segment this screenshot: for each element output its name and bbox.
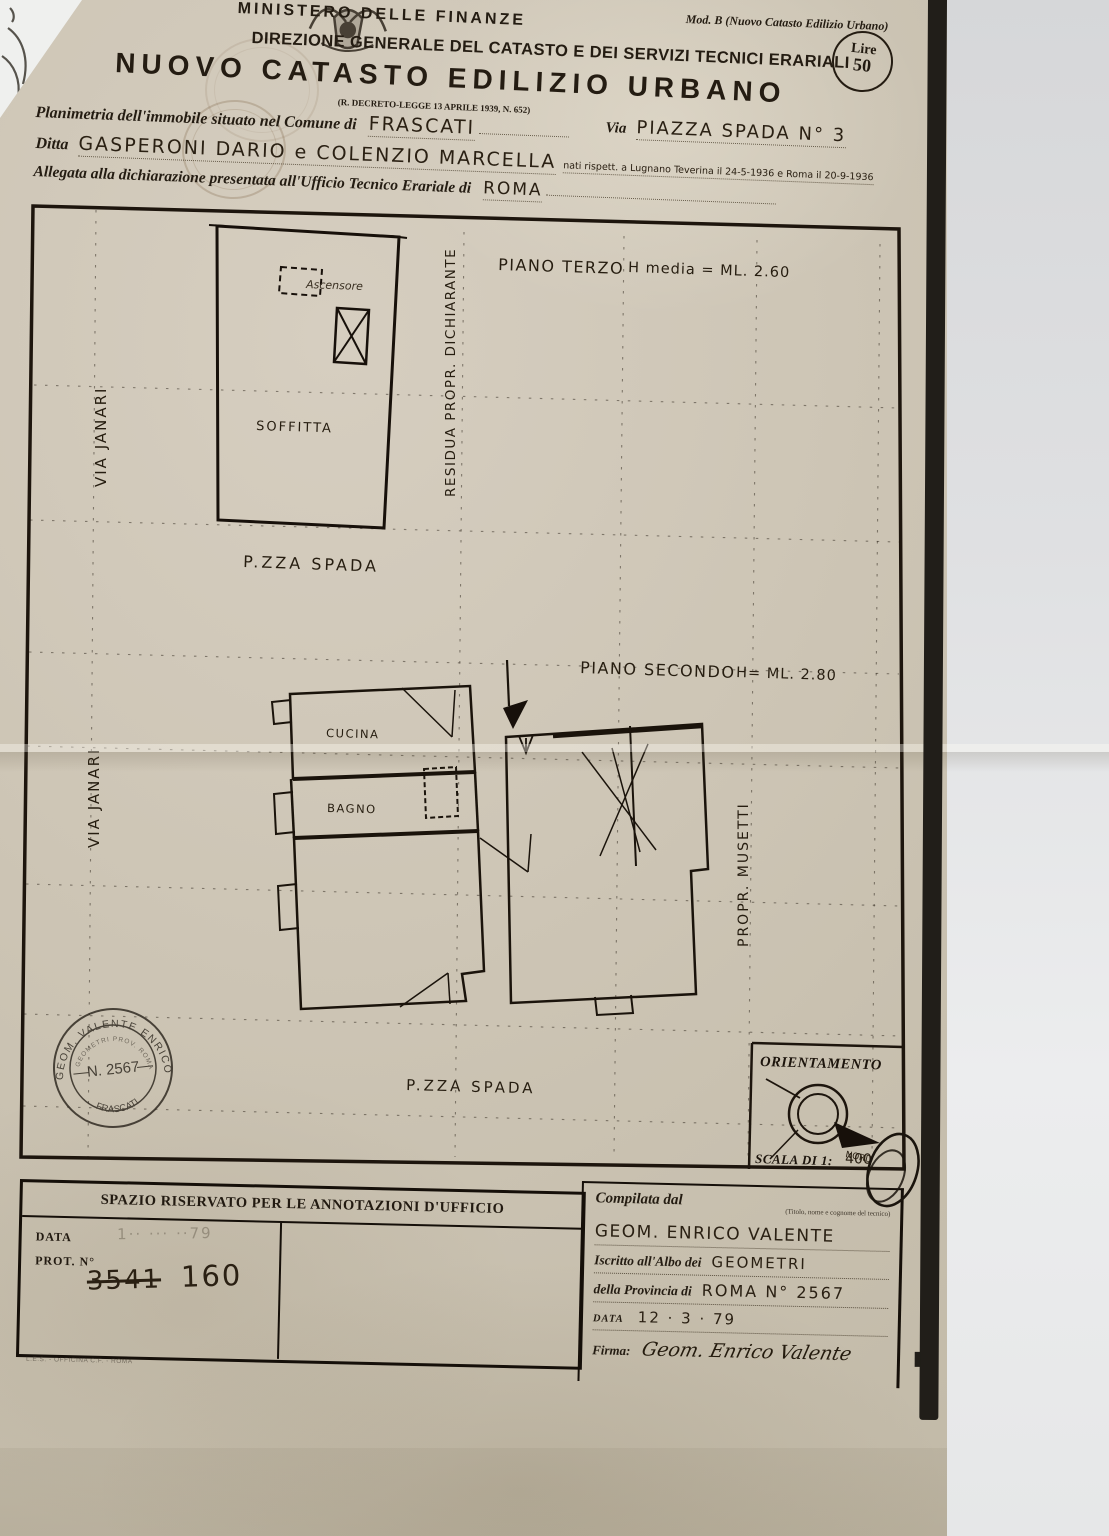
firma-label: Firma: [592, 1342, 631, 1358]
signature: Geom. Enrico Valente [640, 1338, 854, 1365]
protocol-number-crossed: 3541 [86, 1264, 161, 1296]
protocol-numbers: 3541 160 [86, 1258, 242, 1297]
scanned-cadastral-document: MINISTERO DELLE FINANZE Mod. B (Nuovo Ca… [0, 0, 1109, 1536]
compiler-box: Compilata dal (Titolo, nome e cognome de… [577, 1181, 903, 1388]
provincia-label: della Provincia di [593, 1281, 692, 1298]
albo-value: GEOMETRI [711, 1253, 807, 1273]
provincia-value: ROMA N° 2567 [702, 1281, 846, 1303]
compiler-date-label: DATA [593, 1313, 624, 1325]
allegata-value: ROMA [483, 178, 543, 202]
via-label: Via [605, 120, 626, 137]
office-annotations-box: SPAZIO RISERVATO PER LE ANNOTAZIONI D'UF… [16, 1179, 586, 1370]
albo-label: Iscritto all'Albo dei [594, 1252, 702, 1269]
compiler-hint: (Titolo, nome e cognome del tecnico) [785, 1208, 890, 1218]
protocol-number: 160 [180, 1258, 242, 1294]
compiler-date-value: 12 · 3 · 79 [638, 1308, 737, 1328]
compilata-label: Compilata dal [595, 1190, 682, 1208]
office-data-label: DATA [36, 1229, 73, 1245]
ditta-label: Ditta [35, 135, 69, 153]
comune-value: FRASCATI [368, 113, 475, 141]
office-box-divider [277, 1223, 282, 1359]
compiler-name: GEOM. ENRICO VALENTE [595, 1221, 835, 1246]
faded-protocol-stamp: 1·· ··· ··79 [117, 1224, 213, 1243]
